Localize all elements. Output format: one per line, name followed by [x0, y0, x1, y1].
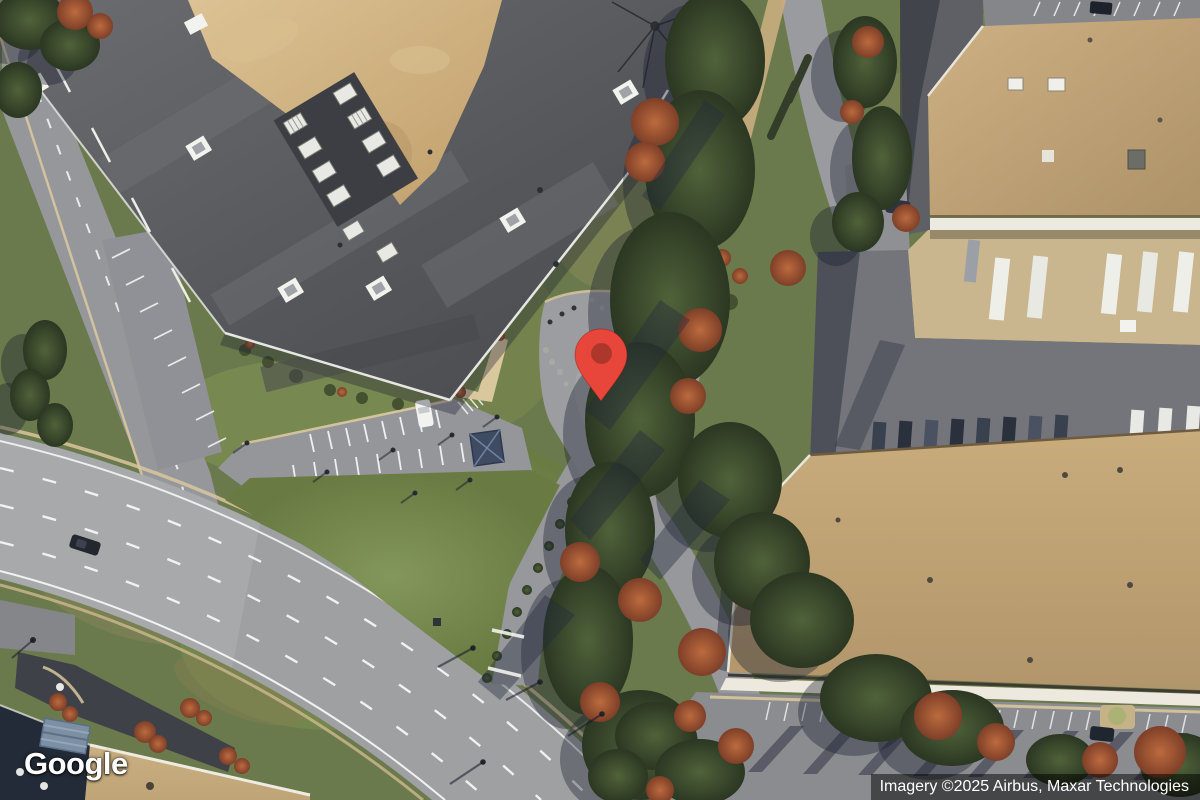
pin-dot	[591, 343, 612, 364]
map-pin[interactable]	[574, 328, 628, 402]
pin-body	[575, 329, 627, 401]
building-top-right-roof	[928, 18, 1200, 216]
covered-structure	[470, 430, 504, 466]
map-viewport[interactable]: Google Imagery ©2025 Airbus, Maxar Techn…	[0, 0, 1200, 800]
google-logo[interactable]: Google	[24, 746, 128, 782]
imagery-attribution: Imagery ©2025 Airbus, Maxar Technologies	[871, 774, 1200, 800]
